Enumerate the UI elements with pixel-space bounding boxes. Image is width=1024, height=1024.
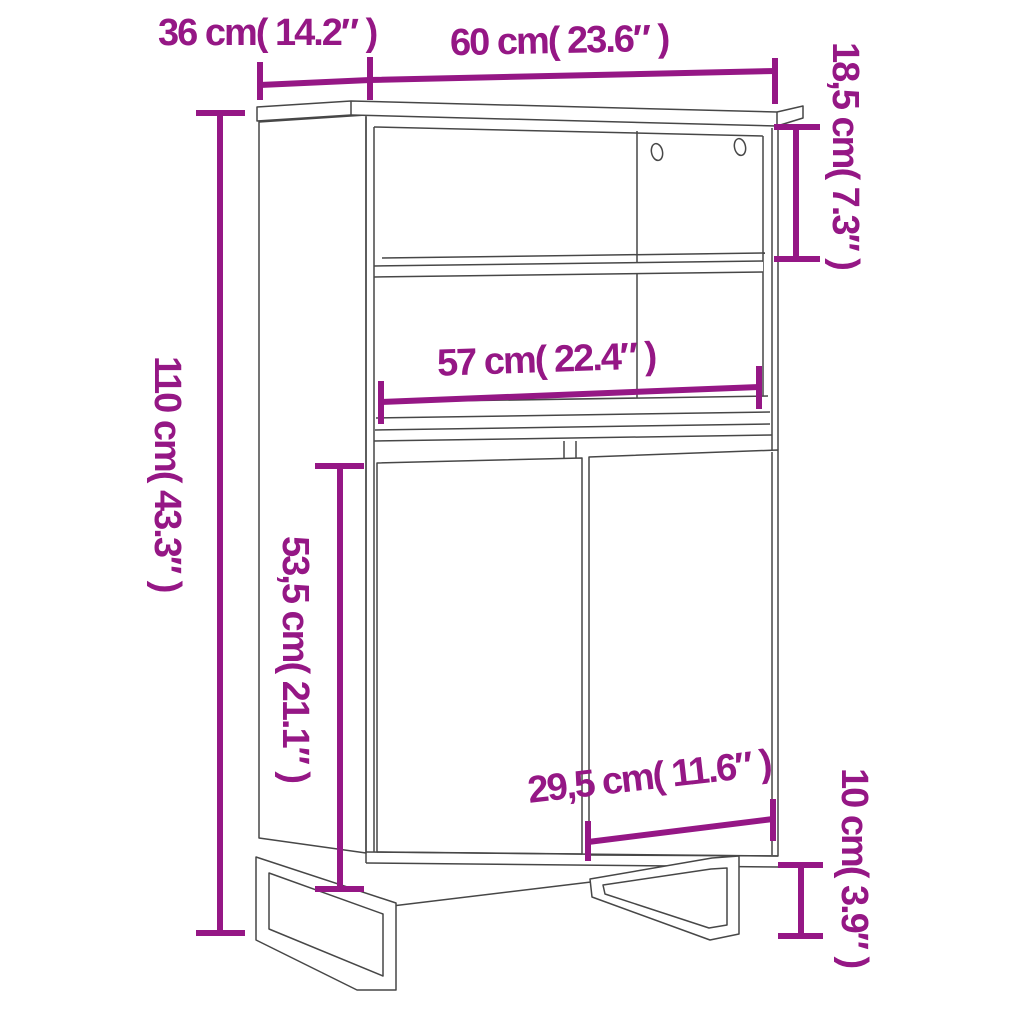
top-rail [374, 435, 772, 441]
underside-edge [392, 882, 591, 906]
total-height-label: 110 cm( 43.3″ ) [146, 356, 186, 591]
hanging-hole-left [650, 143, 664, 162]
compartment-ceiling [374, 127, 763, 136]
dimension-diagram: 36 cm( 14.2″ ) 60 cm( 23.6″ ) 18,5 cm( 7… [0, 0, 1024, 1024]
hanging-hole-right [733, 138, 747, 157]
inner-width-label: 57 cm( 22.4″ ) [436, 337, 656, 384]
door-section-height-label: 53,5 cm( 21.1″ ) [274, 536, 314, 782]
top-compartment-height-label: 18,5 cm( 7.3″ ) [824, 42, 864, 269]
dim-top-line [260, 71, 775, 85]
depth-dimension-label: 36 cm( 14.2″ ) [158, 14, 376, 54]
leg-height-label: 10 cm( 3.9″ ) [833, 768, 873, 967]
width-dimension-label: 60 cm( 23.6″ ) [450, 20, 669, 64]
middle-shelf-back-edge [382, 253, 765, 258]
